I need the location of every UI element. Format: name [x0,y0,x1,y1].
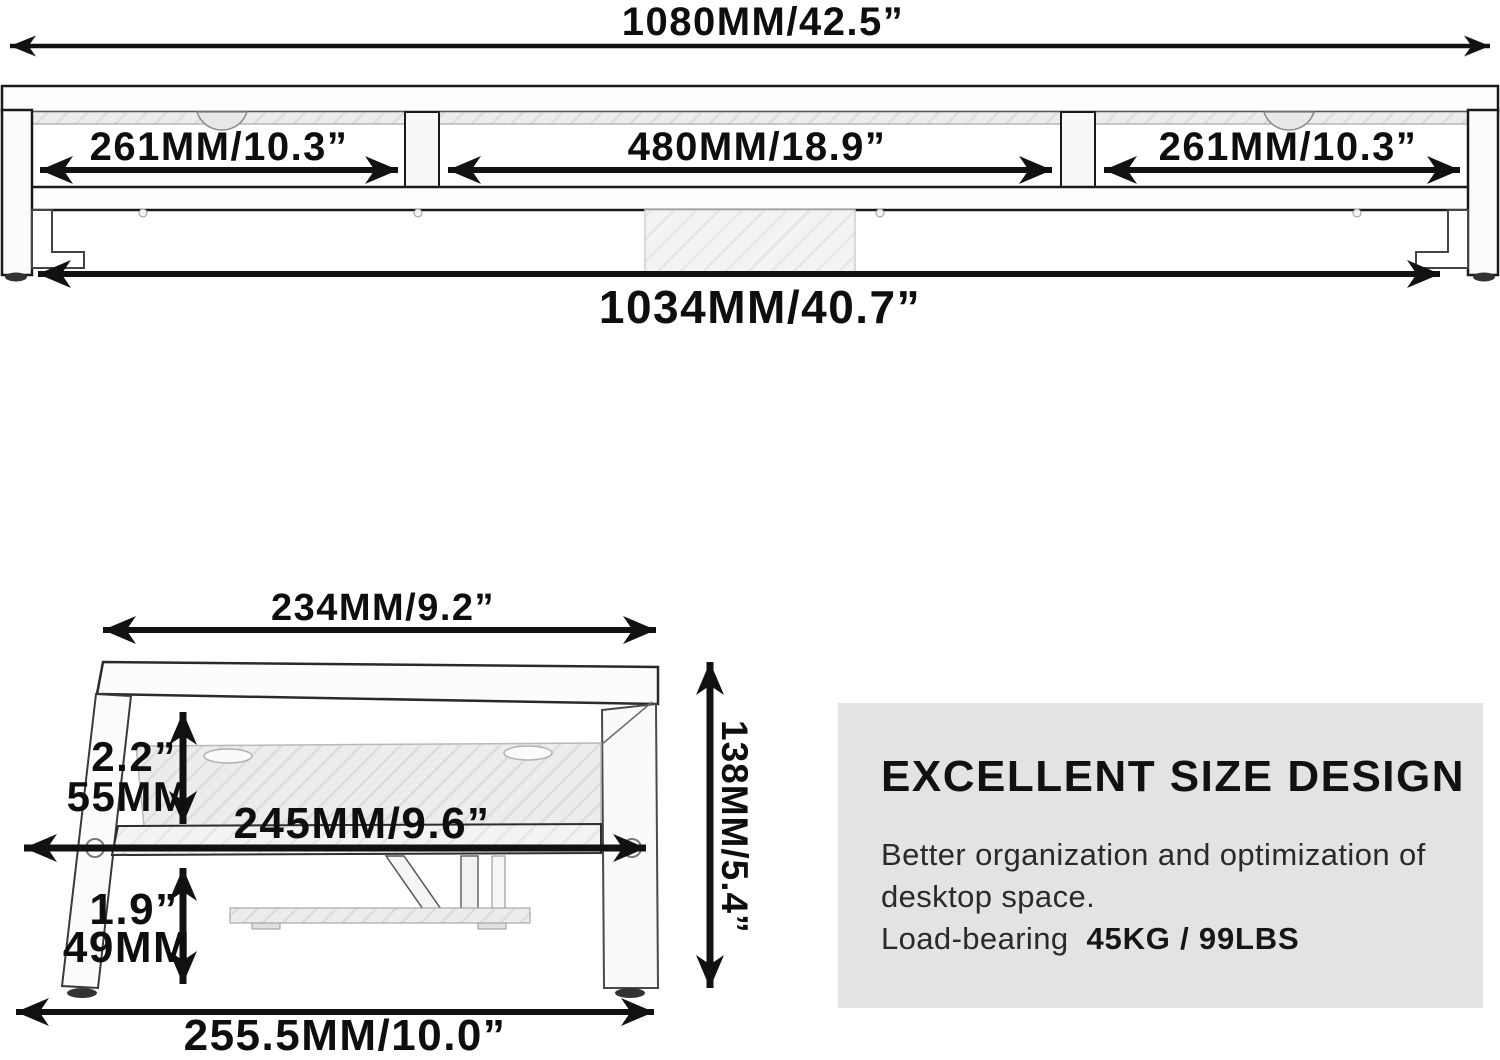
front-right-leg [1468,110,1498,275]
front-left-foot [5,273,27,282]
center-back-panel [645,210,855,272]
load-bearing-value: 45KG / 99LBS [1087,921,1300,956]
dim-label-middle-width: 245MM/9.6” [233,802,490,846]
load-bearing-label: Load-bearing [881,921,1069,956]
dim-label-inner-width: 1034MM/40.7” [599,284,921,330]
info-body-line1: Better organization and optimization of [881,834,1426,876]
divider-post-right [1061,112,1095,187]
dim-label-section-right: 261MM/10.3” [1159,127,1418,167]
info-panel-heading: EXCELLENT SIZE DESIGN [881,752,1465,802]
info-panel: EXCELLENT SIZE DESIGN Better organizatio… [838,703,1483,1008]
front-right-foot [1473,273,1495,282]
inner-bracket-left [32,210,84,268]
dim-label-base-clearance-mm: 49MM [63,926,191,970]
dim-label-shelf-clearance-in: 2.2” [91,736,176,778]
inner-bracket-right [1416,210,1468,268]
dim-label-section-left: 261MM/10.3” [90,127,349,167]
dim-label-section-middle: 480MM/18.9” [628,127,887,167]
info-panel-body: Better organization and optimization of … [881,834,1426,960]
front-left-leg [2,110,32,275]
dim-label-total-height: 138MM/5.4” [716,720,753,934]
info-load-bearing-line: Load-bearing45KG / 99LBS [881,918,1426,960]
divider-post-left [405,112,439,187]
bottom-shelf-board [28,187,1472,210]
dim-label-shelf-clearance-mm: 55MM [67,776,190,818]
dim-label-bottom-width: 255.5MM/10.0” [184,1014,507,1058]
dim-label-total-width: 1080MM/42.5” [622,2,905,42]
dim-label-top-width: 234MM/9.2” [271,589,495,627]
product-dimension-sheet: 1080MM/42.5” 261MM/10.3” 480MM/18.9” 261… [0,0,1500,1058]
info-body-line2: desktop space. [881,876,1426,918]
